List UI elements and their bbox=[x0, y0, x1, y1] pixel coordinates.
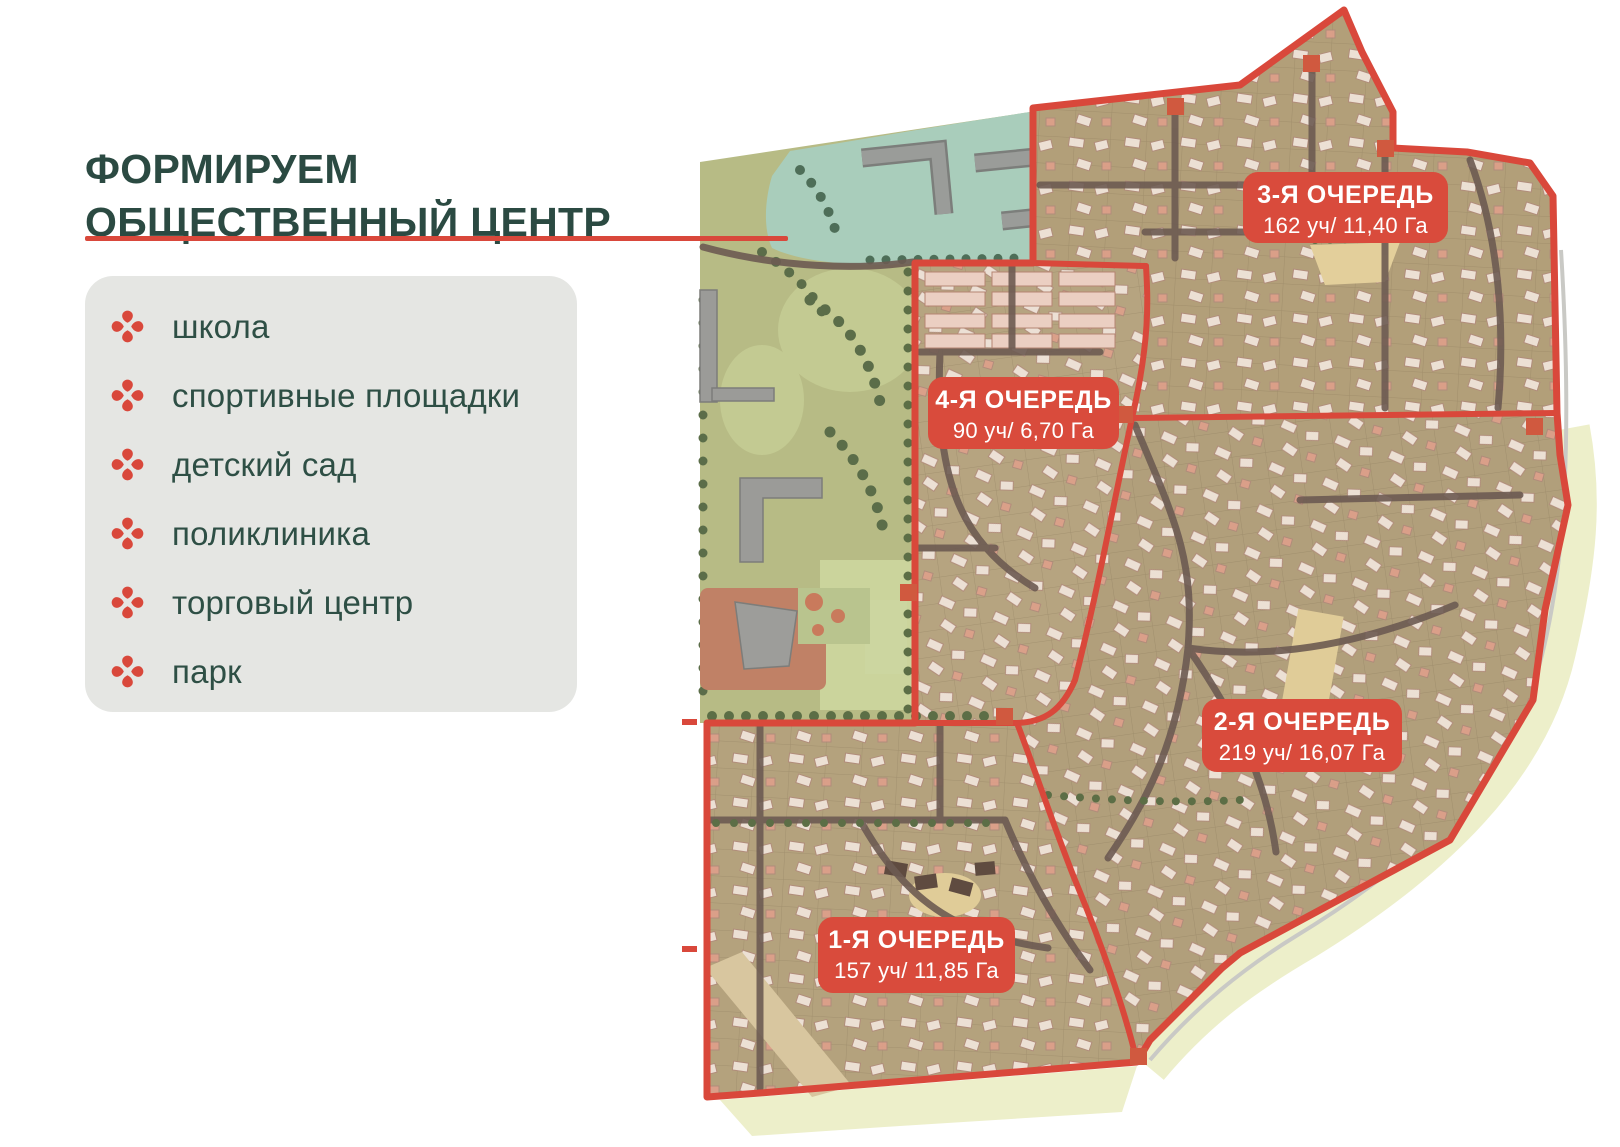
amenity-label: поликлиника bbox=[172, 515, 370, 553]
title-line-1: ФОРМИРУЕМ bbox=[85, 143, 611, 195]
amenity-item-mall: торговый центр bbox=[109, 568, 577, 637]
phase-name: 4-Я ОЧЕРЕДЬ bbox=[928, 387, 1119, 415]
amenity-label: школа bbox=[172, 308, 270, 346]
phase-name: 3-Я ОЧЕРЕДЬ bbox=[1243, 182, 1448, 210]
amenities-list: школа спортивные площадки bbox=[85, 276, 577, 706]
phase-name: 2-Я ОЧЕРЕДЬ bbox=[1202, 709, 1402, 737]
phase-label-1: 1-Я ОЧЕРЕДЬ 157 уч/ 11,85 Га bbox=[818, 917, 1015, 993]
amenity-item-kindergarten: детский сад bbox=[109, 430, 577, 499]
phase-name: 1-Я ОЧЕРЕДЬ bbox=[818, 927, 1015, 955]
flower-icon bbox=[109, 515, 146, 552]
flower-icon bbox=[109, 377, 146, 414]
amenity-item-park: парк bbox=[109, 637, 577, 706]
amenity-item-school: школа bbox=[109, 292, 577, 361]
amenity-label: торговый центр bbox=[172, 584, 413, 622]
phase-stats: 157 уч/ 11,85 Га bbox=[818, 958, 1015, 984]
phase-label-3: 3-Я ОЧЕРЕДЬ 162 уч/ 11,40 Га bbox=[1243, 172, 1448, 243]
amenities-panel: школа спортивные площадки bbox=[85, 276, 577, 712]
school-zone bbox=[766, 112, 1050, 265]
flower-icon bbox=[109, 446, 146, 483]
amenity-label: парк bbox=[172, 653, 242, 691]
phase-label-4: 4-Я ОЧЕРЕДЬ 90 уч/ 6,70 Га bbox=[928, 377, 1119, 449]
amenity-item-sports: спортивные площадки bbox=[109, 361, 577, 430]
phase-stats: 90 уч/ 6,70 Га bbox=[928, 418, 1119, 444]
flower-icon bbox=[109, 308, 146, 345]
phase-stats: 162 уч/ 11,40 Га bbox=[1243, 213, 1448, 239]
boundary-ticks bbox=[682, 719, 697, 952]
amenity-label: спортивные площадки bbox=[172, 377, 520, 415]
masterplan-svg bbox=[660, 0, 1620, 1147]
masterplan-slide: ФОРМИРУЕМ ОБЩЕСТВЕННЫЙ ЦЕНТР школа bbox=[0, 0, 1620, 1147]
amenity-item-clinic: поликлиника bbox=[109, 499, 577, 568]
amenity-label: детский сад bbox=[172, 446, 357, 484]
phase-label-2: 2-Я ОЧЕРЕДЬ 219 уч/ 16,07 Га bbox=[1202, 699, 1402, 772]
flower-icon bbox=[109, 584, 146, 621]
phase-stats: 219 уч/ 16,07 Га bbox=[1202, 740, 1402, 766]
title-underline bbox=[85, 236, 788, 241]
flower-icon bbox=[109, 653, 146, 690]
page-title: ФОРМИРУЕМ ОБЩЕСТВЕННЫЙ ЦЕНТР bbox=[85, 143, 611, 248]
